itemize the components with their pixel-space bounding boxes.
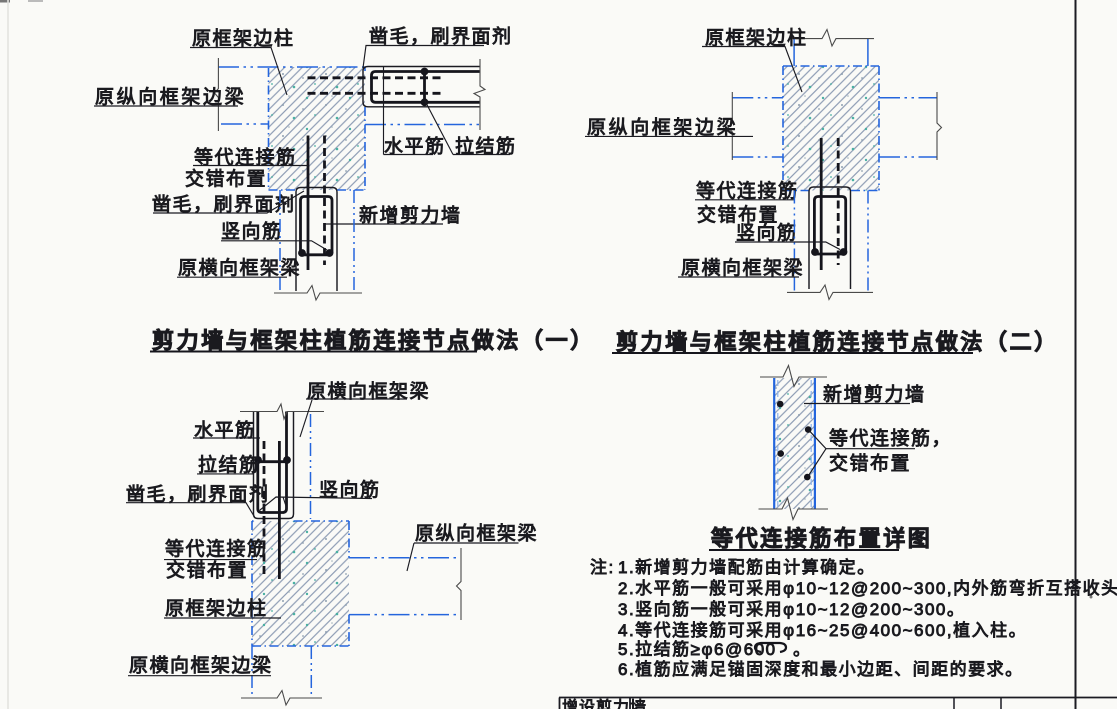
svg-text:凿毛，刷界面剂: 凿毛，刷界面剂 <box>369 26 513 48</box>
svg-text:2.水平筋一般可采用φ10~12@200~300,内外筋弯折: 2.水平筋一般可采用φ10~12@200~300,内外筋弯折互搭收头。 <box>618 579 1117 598</box>
svg-text:竖向筋: 竖向筋 <box>736 222 798 244</box>
svg-text:等代连接筋布置详图: 等代连接筋布置详图 <box>711 526 932 551</box>
svg-text:4.等代连接筋可采用φ16~25@400~600,植入柱。: 4.等代连接筋可采用φ16~25@400~600,植入柱。 <box>618 621 1027 640</box>
svg-text:注:: 注: <box>590 558 615 577</box>
svg-text:新增剪力墙: 新增剪力墙 <box>823 384 926 406</box>
svg-text:凿毛，刷界面剂: 凿毛，刷界面剂 <box>152 194 296 216</box>
svg-text:原框架边柱: 原框架边柱 <box>705 27 808 49</box>
svg-text:等代连接筋: 等代连接筋 <box>165 538 268 560</box>
svg-text:原横向框架边梁: 原横向框架边梁 <box>129 655 273 677</box>
svg-text:竖向筋: 竖向筋 <box>221 221 283 243</box>
svg-text:交错布置: 交错布置 <box>829 453 911 475</box>
svg-text:原纵向框架边梁: 原纵向框架边梁 <box>95 86 246 108</box>
svg-text:拉结筋: 拉结筋 <box>198 454 260 476</box>
svg-text:原横向框架梁: 原横向框架梁 <box>178 257 301 279</box>
svg-text:5.拉结筋≥φ6@600: 5.拉结筋≥φ6@600 <box>618 640 777 659</box>
svg-text:交错布置: 交错布置 <box>166 560 248 582</box>
svg-text:3.竖向筋一般可采用φ10~12@200~300。: 3.竖向筋一般可采用φ10~12@200~300。 <box>618 600 965 619</box>
svg-text:原纵向框架梁: 原纵向框架梁 <box>415 523 538 545</box>
svg-text:6.植筋应满足锚固深度和最小边距、间距的要求。: 6.植筋应满足锚固深度和最小边距、间距的要求。 <box>618 660 1024 679</box>
svg-text:剪力墙与框架柱植筋连接节点做法（二）: 剪力墙与框架柱植筋连接节点做法（二） <box>616 330 1059 355</box>
svg-text:等代连接筋: 等代连接筋 <box>696 180 799 202</box>
svg-text:1.新增剪力墙配筋由计算确定。: 1.新增剪力墙配筋由计算确定。 <box>618 558 876 577</box>
svg-text:增设剪力墙: 增设剪力墙 <box>562 699 647 709</box>
svg-text:原框架边柱: 原框架边柱 <box>192 28 295 50</box>
svg-text:。: 。 <box>793 640 812 659</box>
svg-text:原框架边柱: 原框架边柱 <box>165 598 268 620</box>
svg-text:原纵向框架边梁: 原纵向框架边梁 <box>587 117 738 139</box>
svg-text:等代连接筋，: 等代连接筋， <box>829 428 952 450</box>
svg-text:原横向框架梁: 原横向框架梁 <box>681 257 804 279</box>
svg-text:交错布置: 交错布置 <box>185 168 267 190</box>
svg-text:新增剪力墙: 新增剪力墙 <box>359 205 462 227</box>
svg-text:剪力墙与框架柱植筋连接节点做法（一）: 剪力墙与框架柱植筋连接节点做法（一） <box>152 328 595 353</box>
